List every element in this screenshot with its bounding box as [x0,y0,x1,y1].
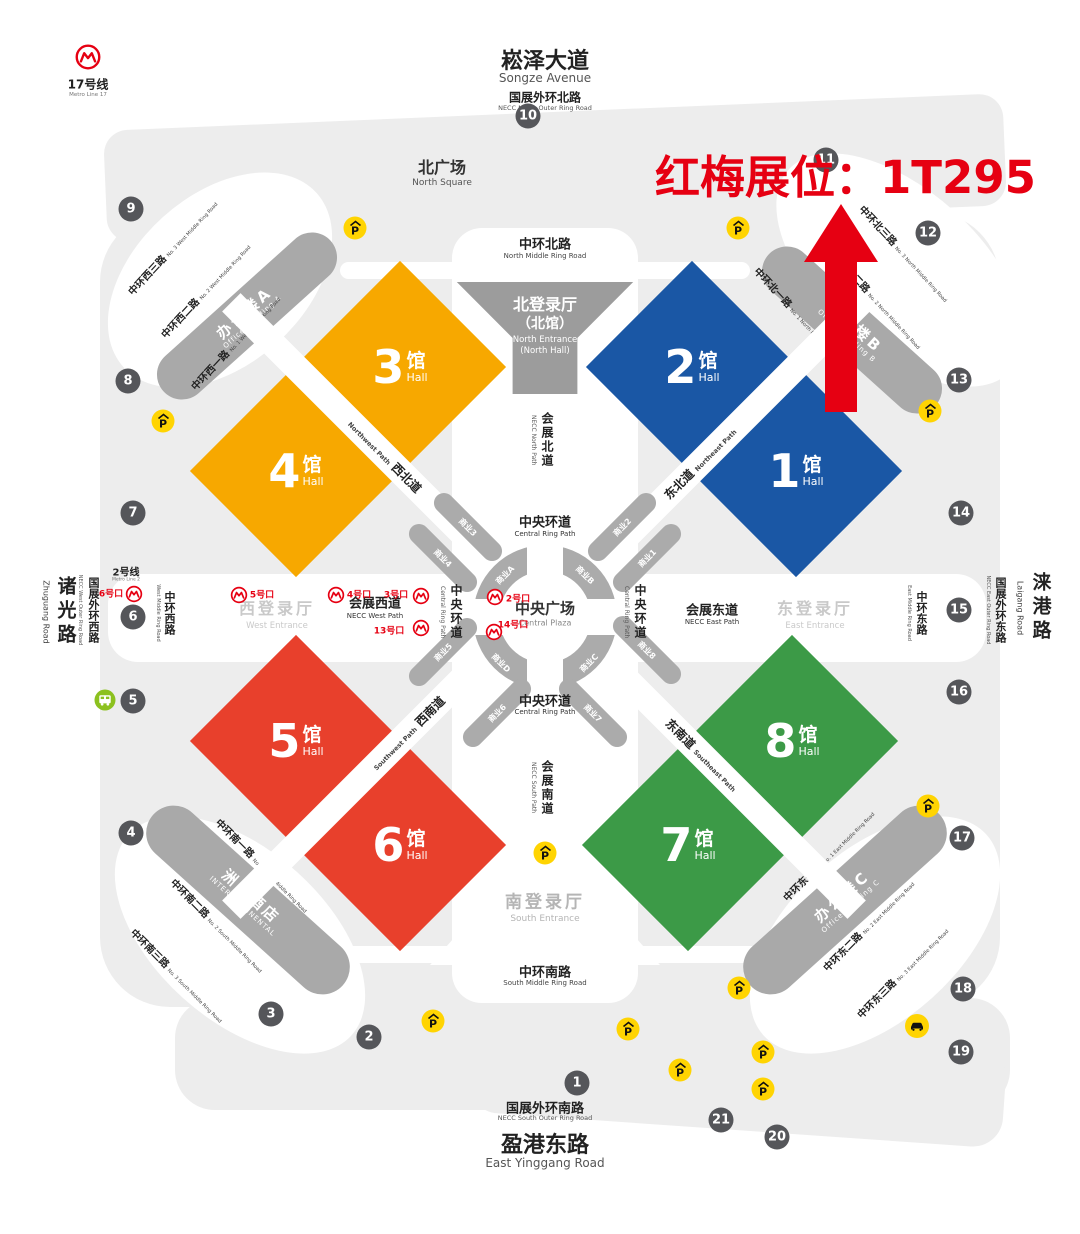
metro-logo-icon [126,586,143,603]
central-ring-left-label: Central Ring Path 中央环道 [439,584,465,640]
north-middle-ring-en: North Middle Ring Road [504,252,587,260]
laigang-road-cn: 涞港路 [1028,572,1055,644]
gate-marker-5: 5 [121,689,146,714]
parking-icon: P [728,977,751,1000]
north-outer-ring-en: NECC North Outer Ring Road [498,104,592,112]
taxi-icon [905,1014,929,1038]
zhuguang-road-en: Zhuguang Road [42,580,51,643]
gate-marker-3: 3 [259,1002,284,1027]
metro-line2-cn: 2号线 [113,564,140,579]
booth-annotation: 红梅展位：1T295 [655,141,1036,206]
necc-west-path-label-en: NECC West Path [347,612,403,620]
central-ring-bottom-en: Central Ring Path [514,708,575,716]
west-outer-ring-en: NECC West Outer Ring Road [77,575,83,645]
parking-icon: P [534,842,557,865]
gate-marker-12: 12 [916,221,941,246]
west-middle-ring-cn: 中环西路 [161,591,177,635]
metro-exit-label: 14号口 [498,618,529,631]
south-entrance-label-en: South Entrance [510,914,579,924]
hall-8-label: 8馆Hall [764,718,819,764]
hall-3-label: 3馆Hall [372,344,427,390]
metro-logo-icon [413,588,430,605]
laigang-road-en: Laigang Road [1016,581,1025,635]
metro-exit-label: 2号口 [506,592,530,605]
gate-marker-4: 4 [119,821,144,846]
parking-icon: P [752,1078,775,1101]
hall-1-label: 1馆Hall [768,448,823,494]
songze-avenue-en: Songze Avenue [499,71,591,85]
gate-marker-7: 7 [121,501,146,526]
gate-marker-21: 21 [709,1108,734,1133]
booth-arrow-shaft [825,262,857,412]
parking-icon: P [152,410,175,433]
parking-icon: P [752,1041,775,1064]
necc-venue-map: 办公楼AOffice Building A办公楼BOffice Building… [0,0,1080,1234]
gate-marker-18: 18 [951,977,976,1002]
gate-marker-13: 13 [947,368,972,393]
south-entrance-label-cn: 南登录厅 [505,888,585,913]
metro-line17-cn: 17号线 [68,76,109,93]
parking-icon: P [669,1059,692,1082]
gate-marker-15: 15 [947,598,972,623]
parking-icon: P [617,1018,640,1041]
east-yinggang-en: East Yinggang Road [485,1156,604,1170]
booth-arrow-icon [804,204,878,262]
metro-exit-label: 5号口 [250,588,274,601]
gate-marker-2: 2 [357,1025,382,1050]
necc-east-path-label-en: NECC East Path [685,618,739,626]
gate-marker-1: 1 [565,1071,590,1096]
gate-marker-14: 14 [949,501,974,526]
north-entrance-label-en2: (North Hall) [520,346,569,356]
metro-logo-icon [487,589,504,606]
parking-icon: P [344,217,367,240]
parking-icon: P [422,1010,445,1033]
east-entrance-label-en: East Entrance [785,621,844,631]
east-outer-ring-cn: 国展外环东路 [992,577,1008,643]
east-entrance-label-cn: 东登录厅 [777,595,853,619]
west-entrance-label-en: West Entrance [246,621,308,631]
metro-exit-label: 13号口 [374,624,405,637]
central-ring-top-cn: 中央环道 [519,512,571,531]
central-ring-right-label: Central Ring Path 中央环道 [623,584,649,640]
necc-north-path-label: NECC North Path 会展北道 [530,412,556,468]
zhuguang-road-cn: 诸光路 [53,576,80,648]
gate-marker-6: 6 [121,605,146,630]
south-outer-ring-en: NECC South Outer Ring Road [498,1114,593,1122]
east-outer-ring-en: NECC East Outer Ring Road [985,576,991,645]
gate-marker-10: 10 [516,104,541,129]
gate-marker-16: 16 [947,680,972,705]
north-square-en: North Square [412,178,472,188]
gate-marker-19: 19 [949,1040,974,1065]
parking-icon: P [727,217,750,240]
parking-icon: P [917,795,940,818]
central-ring-bottom-cn: 中央环道 [519,691,571,710]
metro-logo-icon [413,620,430,637]
north-entrance-label-cn: 北登录厅 [513,291,577,315]
north-outer-ring-cn: 国展外环北路 [509,89,581,106]
north-square-cn: 北广场 [418,154,466,178]
hall-4-label: 4馆Hall [268,448,323,494]
gate-marker-9: 9 [119,197,144,222]
metro-line17-en: Metro Line 17 [69,92,107,98]
metro-exit-label: 6号口 [99,587,123,600]
hall-7-label: 7馆Hall [660,822,715,868]
gate-marker-20: 20 [765,1125,790,1150]
south-middle-ring-cn: 中环南路 [519,962,571,981]
hall-2-label: 2馆Hall [664,344,719,390]
south-middle-ring-en: South Middle Ring Road [503,979,586,987]
metro-exit-label: 3号口 [384,588,408,601]
east-middle-ring-en: East Middle Ring Road [906,585,912,641]
hall-6-label: 6馆Hall [372,822,427,868]
central-ring-top-en: Central Ring Path [514,530,575,538]
parking-icon: P [919,400,942,423]
north-entrance-label-cn2: （北馆） [517,313,573,333]
necc-east-path-label-cn: 会展东道 [686,600,738,619]
east-yinggang-cn: 盈港东路 [501,1127,589,1159]
north-entrance-label-en: North Entrance [513,335,578,345]
metro-line17-icon [75,44,101,70]
metro-exit-label: 4号口 [347,588,371,601]
necc-south-path-label: NECC South Path 会展南道 [530,760,556,816]
east-middle-ring-cn: 中环东路 [913,591,929,635]
metro-logo-icon [328,587,345,604]
north-middle-ring-cn: 中环北路 [519,234,571,253]
metro-logo-icon [231,587,248,604]
gate-marker-8: 8 [116,369,141,394]
gate-marker-17: 17 [950,826,975,851]
hall-5-label: 5馆Hall [268,718,323,764]
metro-line2-en: Metro Line 2 [112,578,140,583]
bus-icon [95,690,116,711]
